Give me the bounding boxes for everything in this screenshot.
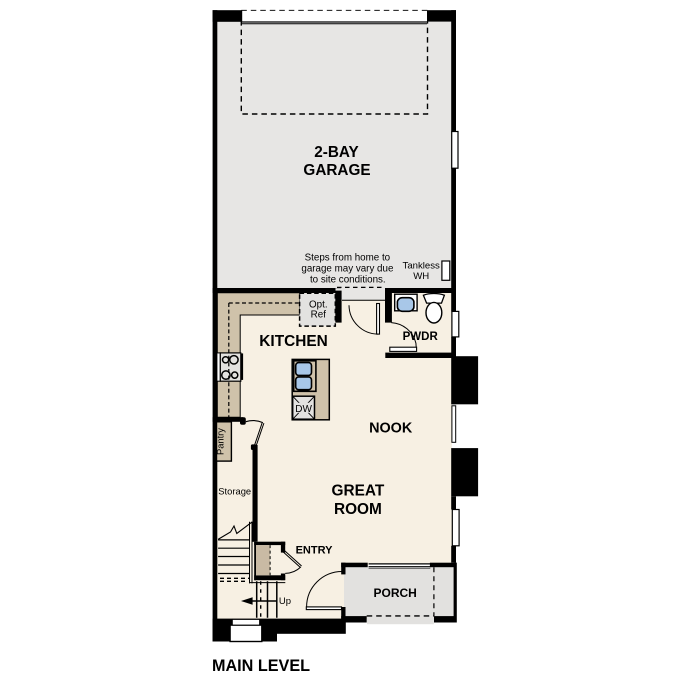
svg-text:GARAGE: GARAGE — [303, 162, 370, 179]
svg-text:Tankless: Tankless — [403, 260, 441, 271]
svg-text:KITCHEN: KITCHEN — [259, 333, 327, 350]
svg-text:DW: DW — [295, 404, 312, 415]
svg-text:PORCH: PORCH — [374, 586, 417, 600]
svg-text:GREAT: GREAT — [332, 482, 385, 499]
svg-text:Storage: Storage — [218, 485, 251, 496]
svg-text:Ref: Ref — [311, 309, 327, 320]
svg-text:NOOK: NOOK — [369, 420, 413, 436]
svg-text:Pantry: Pantry — [216, 428, 226, 455]
svg-text:2-BAY: 2-BAY — [314, 144, 359, 161]
svg-text:ROOM: ROOM — [334, 501, 382, 518]
svg-text:PWDR: PWDR — [403, 331, 439, 343]
svg-text:WH: WH — [413, 271, 429, 282]
svg-text:to site conditions.: to site conditions. — [310, 275, 386, 286]
svg-text:MAIN LEVEL: MAIN LEVEL — [212, 657, 310, 675]
svg-text:ENTRY: ENTRY — [296, 545, 334, 557]
svg-text:garage may vary due: garage may vary due — [301, 263, 394, 274]
svg-text:Up: Up — [279, 596, 291, 607]
svg-text:Steps from home to: Steps from home to — [305, 252, 391, 263]
